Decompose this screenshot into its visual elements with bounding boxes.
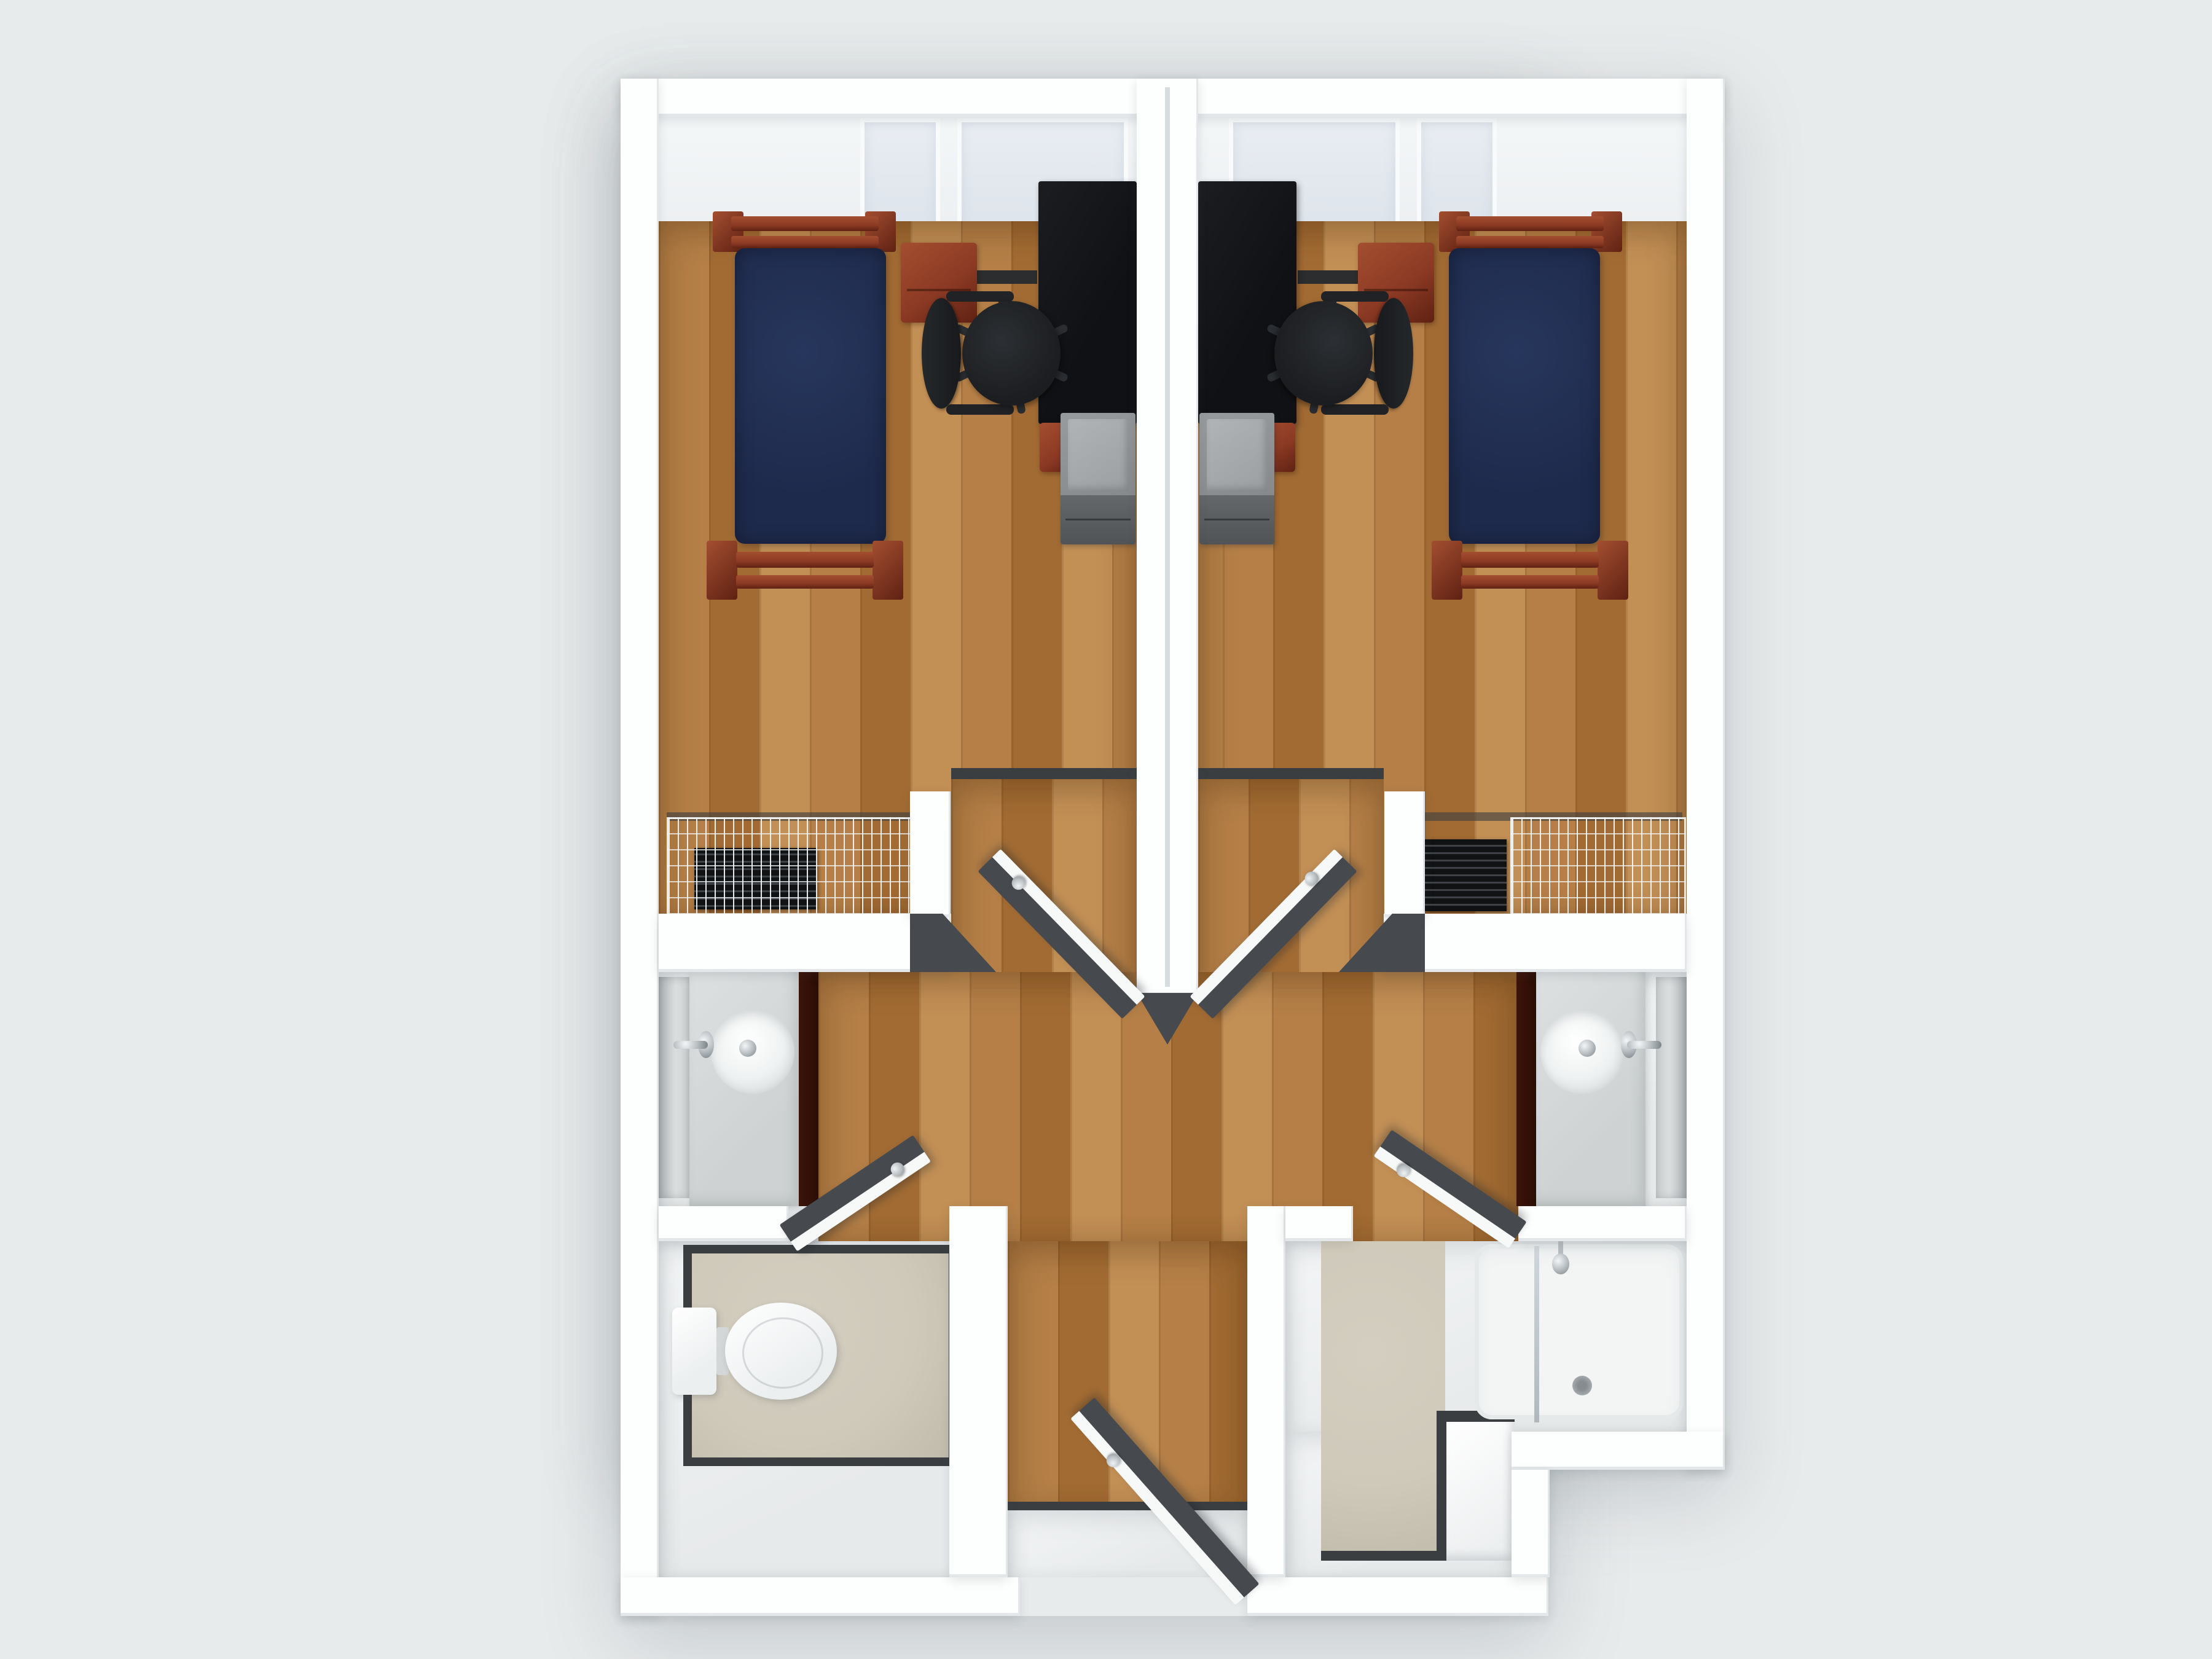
threshold-bedroom-left [951, 768, 1137, 779]
shower-tile-edge-south [1321, 1551, 1446, 1561]
chair-left-armrest-n [946, 291, 1014, 302]
bed-right-headboard-rail-1 [1456, 216, 1604, 231]
chair-left-seat [962, 301, 1061, 406]
faucet-head-left [739, 1040, 756, 1057]
chair-right-armrest-n [1321, 291, 1389, 302]
wall-shower-north-west [1285, 1206, 1353, 1241]
center-divider-seam [1165, 87, 1170, 987]
bed-right-footboard-rail-2 [1461, 575, 1599, 589]
drawer-pedestal-left-top [1068, 419, 1128, 492]
wall-notch-vertical [1512, 1470, 1550, 1577]
door-toilet-room-knob [888, 1160, 907, 1179]
bed-left-headboard-rail-1 [731, 216, 879, 231]
chair-left-armrest-s [946, 404, 1014, 415]
radiator-right [1424, 839, 1507, 911]
vanity-side-panel-left [799, 972, 818, 1206]
vanity-side-panel-right [1516, 972, 1536, 1206]
shower-tile-edge-east [1437, 1411, 1446, 1561]
wall-corridor-west [949, 1206, 1008, 1577]
faucet-lever-left [673, 1041, 708, 1049]
wall-closet-south-right [1384, 914, 1687, 972]
bed-left-footboard-rail-2 [736, 575, 874, 589]
wall-closet-south-left [659, 914, 951, 972]
faucet-head-right [1579, 1040, 1596, 1057]
drawer-pedestal-left-drawers [1061, 495, 1135, 544]
bed-right-mattress [1449, 248, 1600, 544]
toilet-seat-ring [742, 1317, 823, 1389]
bed-right-footboard-post-a [1432, 541, 1462, 600]
wall-center-divider [1137, 79, 1198, 995]
wall-notch-horizontal [1512, 1432, 1725, 1470]
bed-right-footboard-rail-1 [1461, 552, 1599, 568]
wall-outer-right [1687, 79, 1725, 1470]
bed-left-footboard-post-a [707, 541, 737, 600]
chair-right-seat [1274, 301, 1373, 406]
drawer-seam [1204, 519, 1269, 520]
vanity-mirror-right [1656, 977, 1687, 1198]
door-bedroom-left-knob [1010, 874, 1029, 893]
tub-step [1446, 1421, 1515, 1561]
faucet-lever-right [1627, 1041, 1661, 1049]
chair-left-backrest [922, 298, 961, 409]
wall-outer-bottom-right [1247, 1577, 1548, 1616]
wall-corridor-east [1247, 1206, 1285, 1577]
chair-right-armrest-s [1321, 404, 1389, 415]
closet-wire-shelf-right [1510, 817, 1686, 916]
shower-head [1552, 1253, 1569, 1274]
toilet-tank [672, 1308, 716, 1395]
bed-right-footboard-post-b [1598, 541, 1628, 600]
drawer-pedestal-right-drawers [1199, 495, 1274, 544]
bed-left-mattress [735, 248, 886, 544]
shower-drain [1572, 1376, 1592, 1395]
vanity-mirror-left [659, 977, 689, 1198]
chair-right-backrest [1374, 298, 1413, 409]
closet-wire-shelf-left [667, 817, 913, 916]
bed-right-headboard-rail-2 [1456, 236, 1604, 248]
wall-outer-bottom-left [621, 1577, 1020, 1616]
wall-toilet-north [659, 1206, 788, 1241]
floor-plan-canvas [0, 0, 2212, 1659]
drawer-pedestal-right-top [1207, 419, 1267, 492]
wall-door-stub-right [1384, 791, 1425, 917]
shower-room-tile [1321, 1241, 1445, 1561]
wall-vanity-south-right [1518, 1206, 1687, 1241]
desk-right [1198, 181, 1296, 424]
bed-left-footboard-post-b [873, 541, 903, 600]
wall-door-stub-left [910, 791, 951, 917]
bed-left-headboard-rail-2 [731, 236, 879, 248]
desk-left [1038, 181, 1137, 424]
wall-outer-left [621, 79, 659, 1616]
threshold-bedroom-right [1198, 768, 1384, 779]
bed-left-footboard-rail-1 [736, 552, 874, 568]
drawer-seam [1065, 519, 1131, 520]
shower-glass-screen [1534, 1246, 1539, 1422]
